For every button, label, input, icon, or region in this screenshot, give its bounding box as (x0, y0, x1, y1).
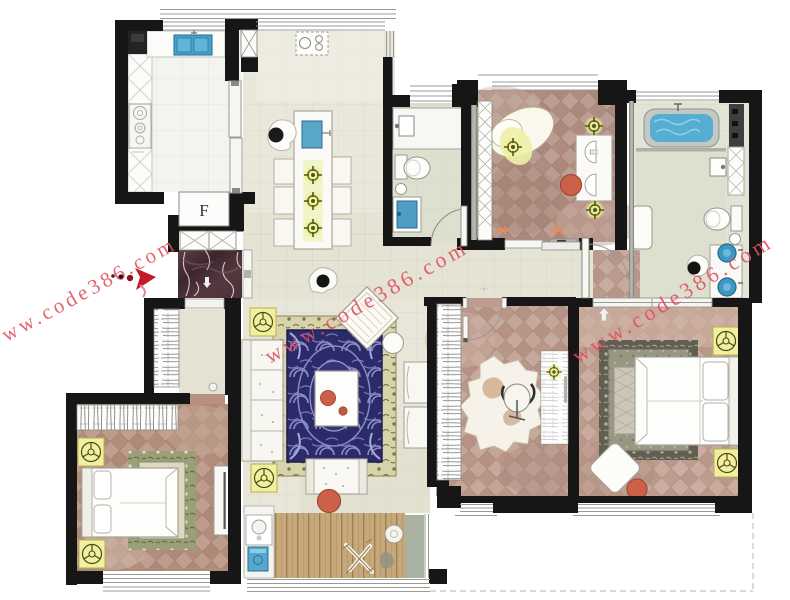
svg-text:F: F (199, 201, 208, 220)
